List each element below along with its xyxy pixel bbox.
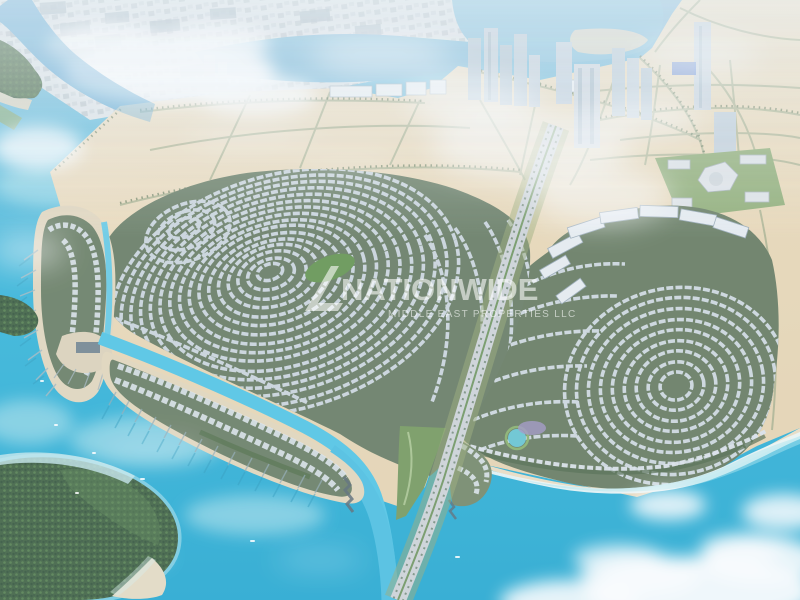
svg-text:MIDDLE EAST PROPERTIES LLC: MIDDLE EAST PROPERTIES LLC <box>388 309 576 320</box>
svg-text:NATIONWIDE: NATIONWIDE <box>341 272 538 307</box>
